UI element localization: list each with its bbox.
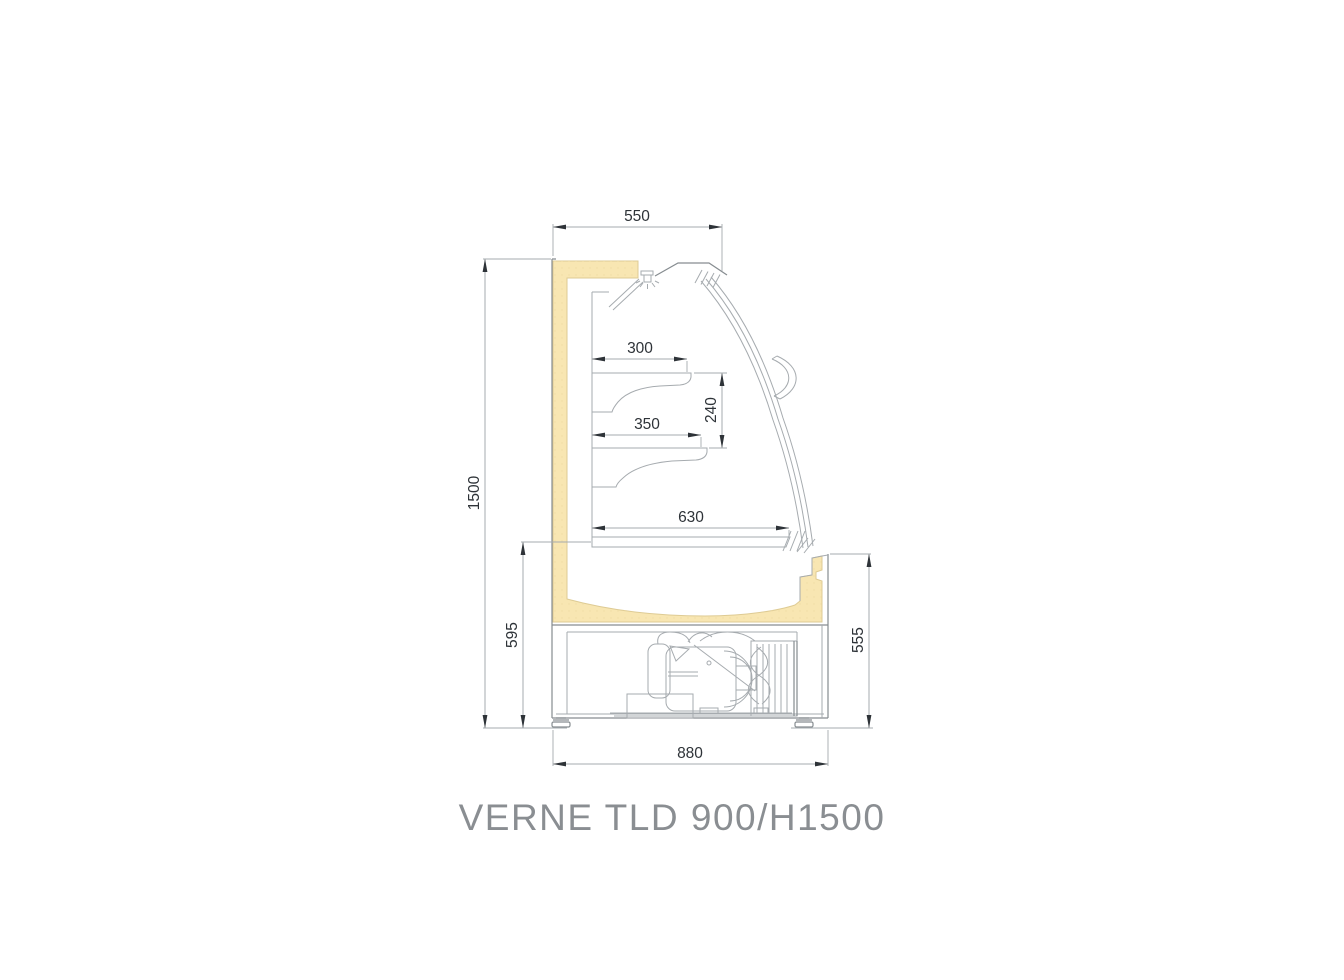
suction-accumulator (648, 632, 690, 698)
compressor-body (666, 647, 736, 711)
accumulator-pipe (658, 632, 690, 644)
refrigerant-pipes (688, 632, 755, 691)
dimension-label: 1500 (466, 475, 483, 510)
condenser-frame (751, 641, 797, 716)
dimension-label: 350 (634, 416, 660, 433)
lamp-icon (636, 271, 659, 289)
product-title: VERNE TLD 900/H1500 (459, 797, 886, 838)
dimension-lower-shelf-depth: 350 (592, 416, 701, 447)
adjustable-feet (483, 718, 873, 728)
display-case-cross-section-drawing: 550 1500 300 240 350 (0, 0, 1344, 980)
dimension-label: 880 (677, 745, 703, 762)
lamp-bracket (641, 271, 653, 275)
compressor-dome (724, 651, 752, 707)
dimension-overall-height: 1500 (466, 259, 551, 728)
air-duct-slope (609, 279, 643, 310)
condenser-edge (794, 641, 797, 716)
dimension-shelf-spacing: 240 (694, 373, 727, 448)
shelf-profile (592, 373, 691, 412)
insulation-shape (553, 261, 822, 622)
base-deck (592, 531, 805, 551)
dimension-upper-shelf-depth: 300 (592, 340, 687, 372)
foot-pad (552, 722, 570, 727)
shelf-profile (592, 448, 707, 487)
inner-liner-wall (592, 292, 609, 537)
compressor-bolt (707, 661, 711, 665)
dimension-base-depth: 880 (553, 730, 828, 766)
dimension-base-height-left: 595 (504, 542, 591, 728)
compressor-bands (668, 672, 698, 676)
shelf-upper (592, 373, 691, 412)
refrigeration-unit (610, 632, 797, 718)
glass-top-ticks (695, 270, 720, 288)
foot-pad (795, 722, 813, 727)
mount-pad (754, 708, 768, 713)
handle-arc (772, 356, 796, 399)
insulation-foam (553, 261, 822, 622)
dimension-deck-depth: 630 (592, 509, 789, 536)
insulation-texture (553, 261, 822, 622)
dimension-label: 550 (624, 208, 650, 225)
glass-pane-line (706, 279, 808, 547)
dimension-base-height-right: 555 (830, 554, 871, 728)
condenser-fins (757, 644, 787, 713)
dimensions: 550 1500 300 240 350 (466, 208, 871, 766)
dimension-label: 630 (678, 509, 704, 526)
foot-left (552, 718, 570, 727)
condenser-coil (751, 641, 797, 716)
condenser-fan (736, 647, 770, 704)
foot-right (795, 718, 813, 727)
display-case-unit (483, 259, 873, 728)
dimension-label: 240 (703, 397, 720, 423)
technical-drawing-page: 550 1500 300 240 350 (0, 0, 1344, 980)
dimension-label: 595 (504, 622, 521, 648)
dimension-label: 300 (627, 340, 653, 357)
dimension-label: 555 (850, 627, 867, 653)
glass-handle (772, 356, 796, 399)
accumulator-bracket (670, 646, 689, 661)
deck-profile (592, 537, 790, 547)
glass-pane-line (711, 277, 813, 546)
shelf-lower (592, 448, 707, 487)
lamp-body (644, 275, 651, 282)
